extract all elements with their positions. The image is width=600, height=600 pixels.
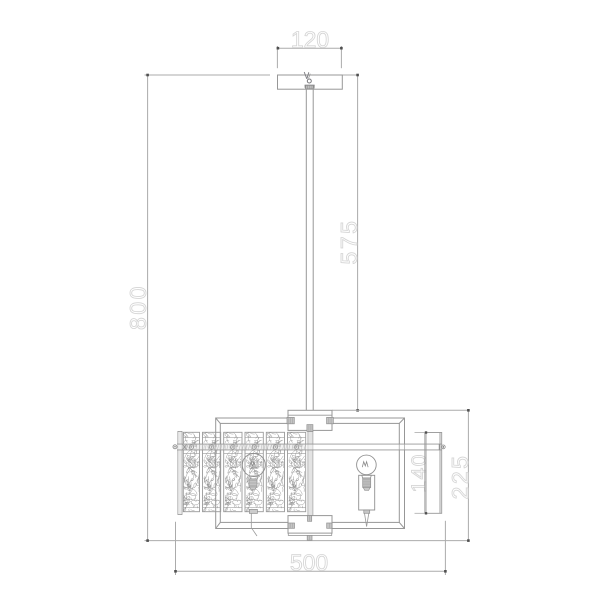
svg-text:140: 140 [408,453,431,493]
svg-text:575: 575 [336,219,362,265]
svg-text:120: 120 [291,27,329,53]
svg-text:800: 800 [125,284,151,330]
svg-text:500: 500 [290,549,328,575]
svg-text:225: 225 [447,454,473,500]
